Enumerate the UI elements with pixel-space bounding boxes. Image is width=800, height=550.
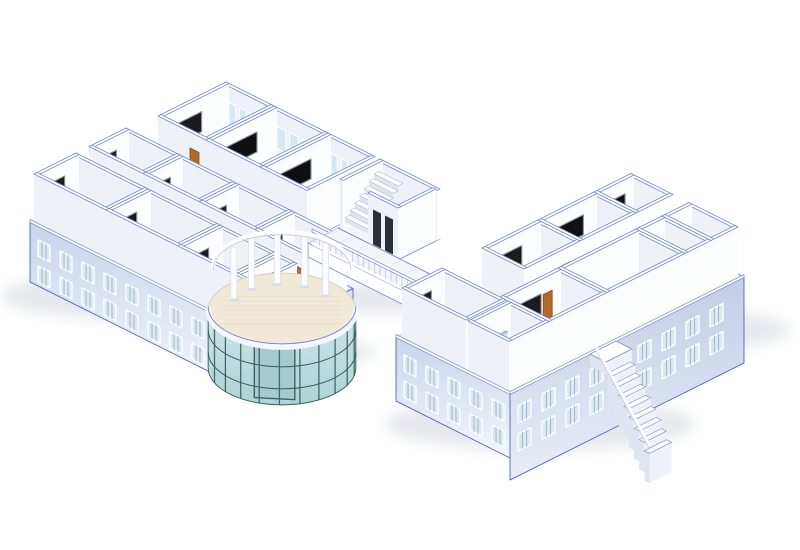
building-cutaway-illustration: [0, 0, 800, 550]
isometric-floorplan-svg: [0, 0, 800, 550]
